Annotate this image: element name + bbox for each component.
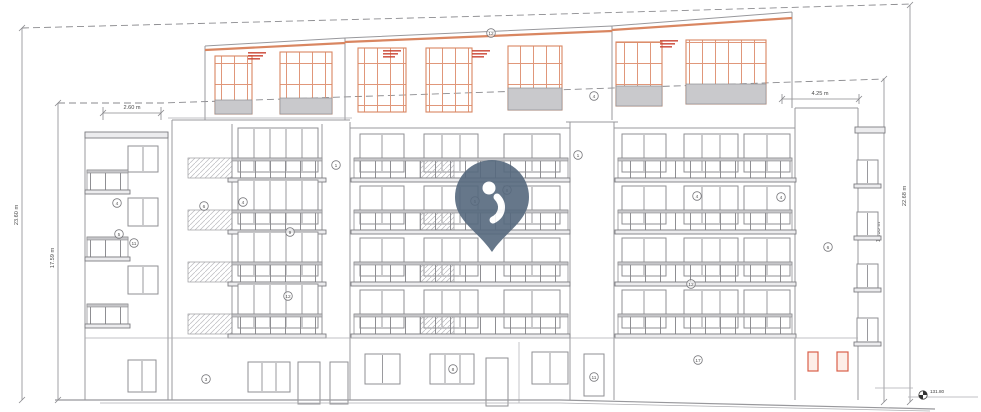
keynote-number: 4 xyxy=(696,194,699,200)
elevation-drawing: 23.60 m 17.59 m 13.59 m 22.68 m 2.60 m 4… xyxy=(0,0,981,412)
proposed-opening-left xyxy=(808,352,818,371)
dim-top-width: 2.60 m xyxy=(123,105,140,111)
dim-left-outer: 23.60 m xyxy=(14,205,20,226)
keynote-number: 6 xyxy=(827,245,830,251)
dim-right-width: 4.25 m xyxy=(811,91,828,97)
keynote-number: 4 xyxy=(242,200,245,206)
keynote-number: 4 xyxy=(780,195,783,201)
attic-level-proposed xyxy=(205,12,792,120)
keynote-number: 5 xyxy=(118,232,121,238)
keynote-number: 8 xyxy=(452,367,455,373)
keynote-number: 12 xyxy=(688,282,694,288)
keynote-number: 11 xyxy=(592,375,597,381)
proposed-opening-right xyxy=(837,352,848,371)
keynote-number: 3 xyxy=(205,377,208,383)
keynote-number: 1 xyxy=(577,153,580,159)
keynote-number: 12 xyxy=(488,31,494,37)
keynote-number: 9 xyxy=(289,230,292,236)
keynote-number: 12 xyxy=(285,294,291,300)
level-value: 131.80 xyxy=(930,389,944,394)
keynote-number: 11 xyxy=(132,241,137,247)
dim-left-inner: 17.59 m xyxy=(50,248,56,269)
facade-left-centre-section xyxy=(168,118,352,400)
ground-floor xyxy=(85,338,858,406)
keynote-number: 6 xyxy=(203,204,206,210)
level-marker: 131.80 xyxy=(908,389,978,399)
keynote-number: 4 xyxy=(593,94,596,100)
dim-right-outer: 22.68 m xyxy=(902,186,908,207)
keynote-number: 1 xyxy=(335,163,338,169)
keynote-number: 4 xyxy=(116,201,119,207)
facade-right-centre-section xyxy=(614,108,796,400)
keynote-number: 17 xyxy=(695,358,701,364)
